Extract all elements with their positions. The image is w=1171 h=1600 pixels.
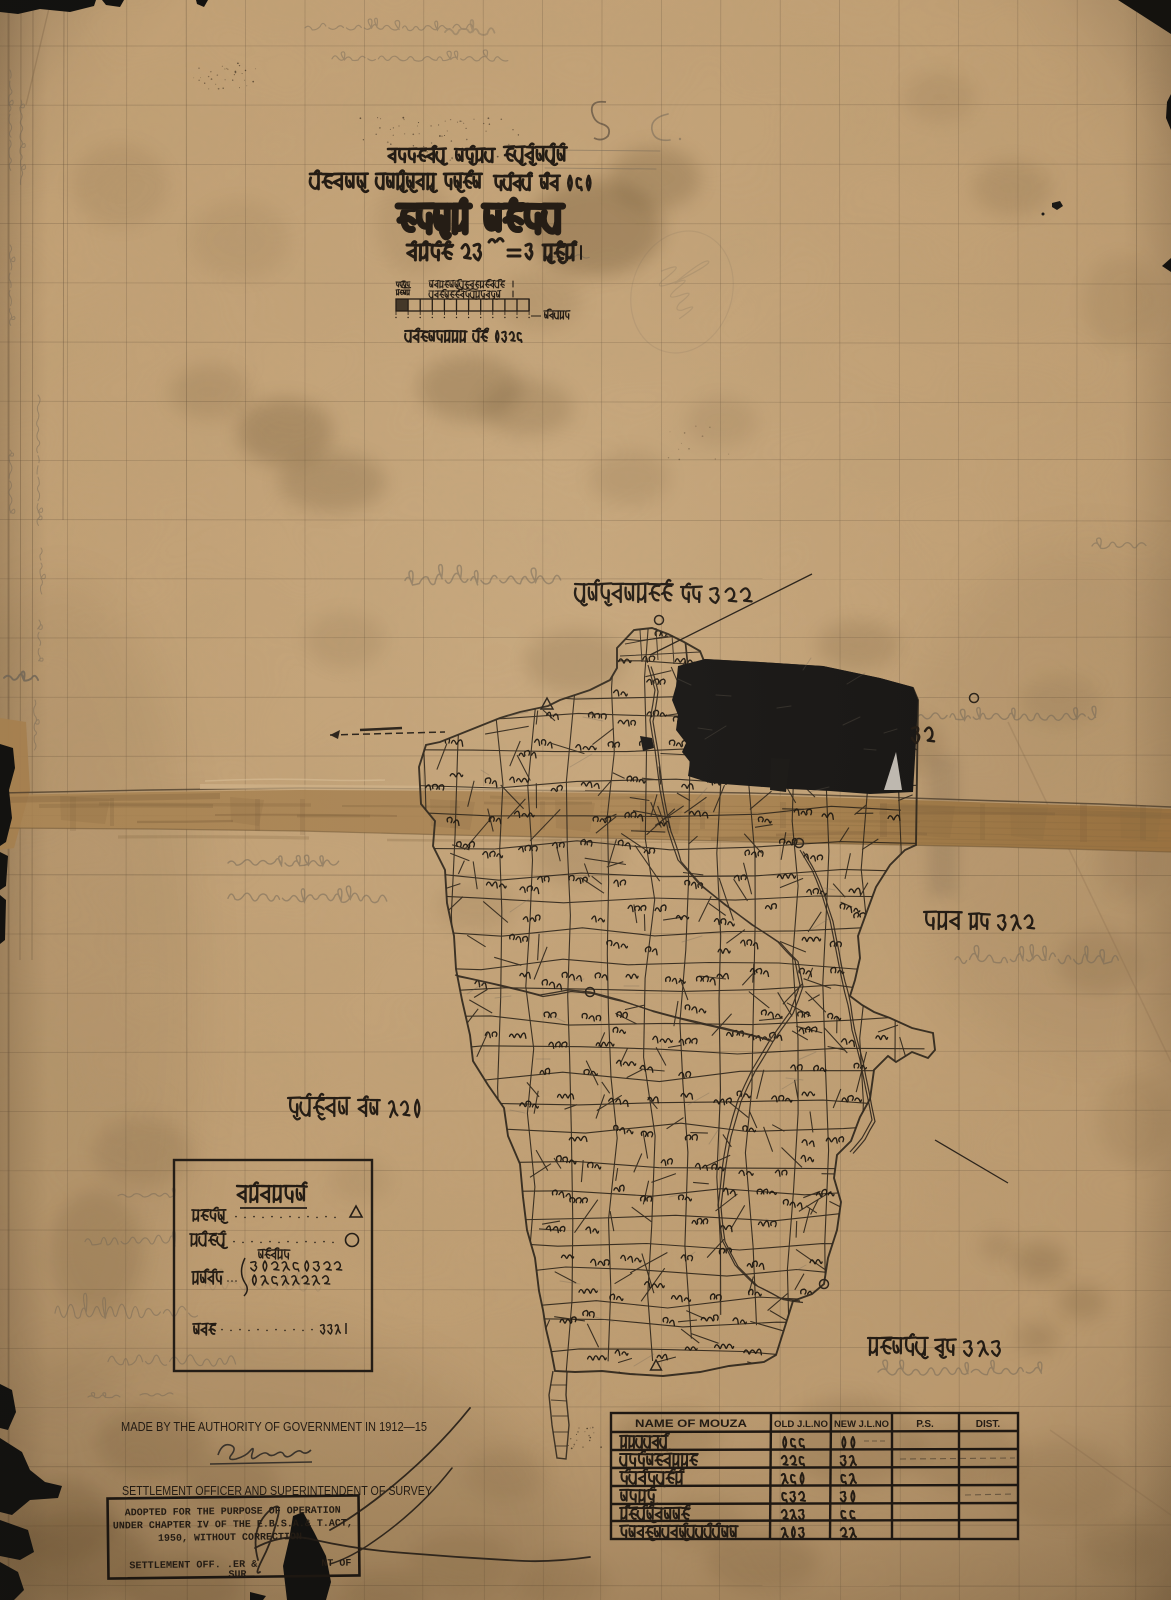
svg-text:NEW J.L.NO: NEW J.L.NO	[834, 1419, 889, 1430]
svg-text:NT OF: NT OF	[321, 1559, 351, 1570]
svg-text:NAME OF MOUZA: NAME OF MOUZA	[635, 1418, 747, 1430]
svg-text:MADE BY THE AUTHORITY OF GOVER: MADE BY THE AUTHORITY OF GOVERNMENT IN 1…	[121, 1419, 427, 1434]
svg-text:DIST.: DIST.	[976, 1419, 1001, 1430]
svg-text:SUR: SUR	[228, 1570, 246, 1581]
svg-text:OLD J.L.NO: OLD J.L.NO	[774, 1419, 828, 1430]
svg-text:P.S.: P.S.	[916, 1419, 934, 1430]
